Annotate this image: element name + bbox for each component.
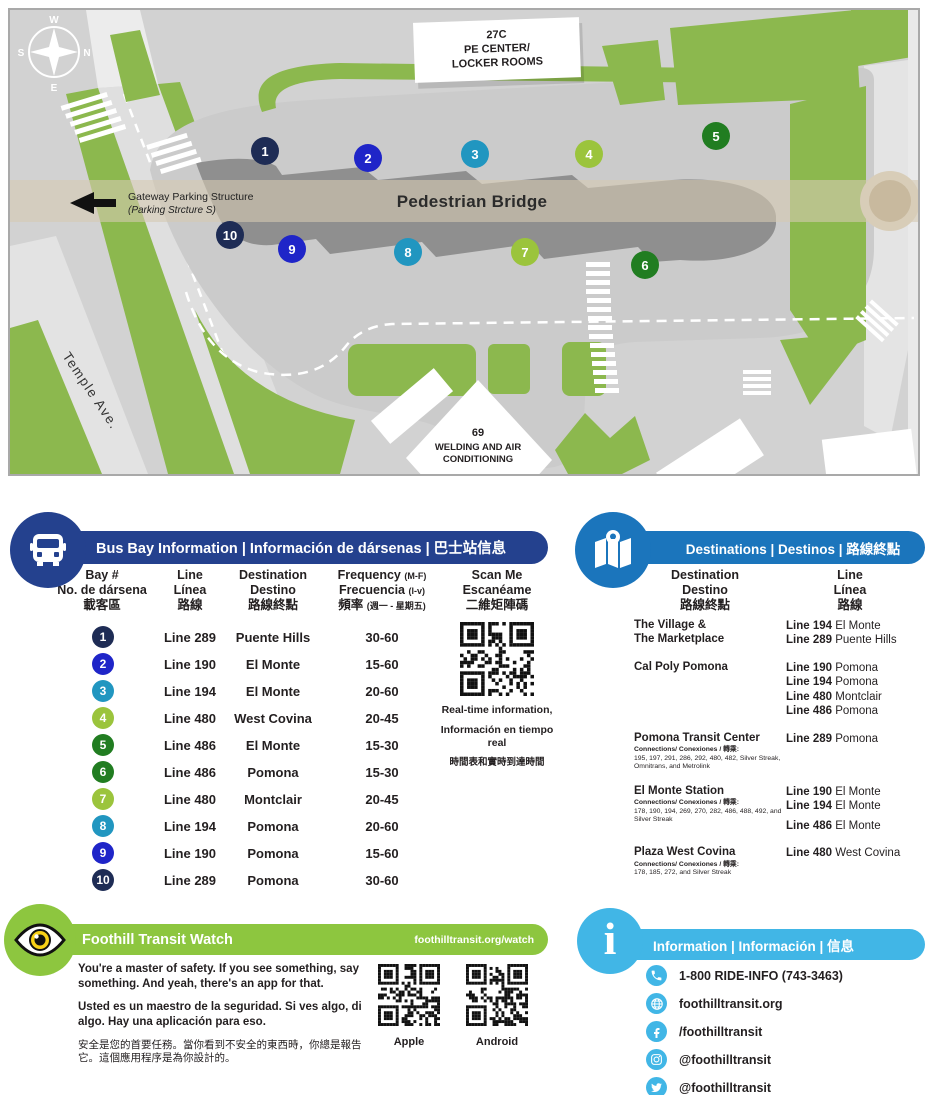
svg-text:8: 8 <box>404 245 411 260</box>
bus-bay-title-text: Bus Bay Information | Información de dár… <box>96 537 506 558</box>
facebook-row: /foothilltransit <box>646 1021 762 1042</box>
bay-marker-1: 1 <box>251 137 279 165</box>
svg-text:PE CENTER/: PE CENTER/ <box>464 42 530 56</box>
instagram-handle[interactable]: @foothilltransit <box>679 1053 771 1067</box>
instagram-row: @foothilltransit <box>646 1049 771 1070</box>
list-item: El Monte Station Connections/ Conexiones… <box>634 785 926 833</box>
eye-icon <box>4 904 76 976</box>
bus-loop-map: 27C PE CENTER/ LOCKER ROOMS 69 WELDING A… <box>8 8 920 476</box>
watch-text-es: Usted es un maestro de la seguridad. Si … <box>78 1000 370 1029</box>
bay-marker-4: 4 <box>575 140 603 168</box>
phone-icon <box>646 965 667 986</box>
destinations-list: The Village & The Marketplace Line 194 E… <box>634 619 926 891</box>
apple-qr-code[interactable] <box>378 964 440 1031</box>
svg-text:1: 1 <box>261 144 268 159</box>
svg-text:3: 3 <box>471 147 478 162</box>
bay-number-badge: 10 <box>92 869 114 891</box>
bay-marker-10: 10 <box>216 221 244 249</box>
table-row: 7 Line 480 Montclair 20-45 <box>0 786 560 813</box>
table-row: 8 Line 194 Pomona 20-60 <box>0 813 560 840</box>
map-icon <box>575 512 651 588</box>
transit-poster: 27C PE CENTER/ LOCKER ROOMS 69 WELDING A… <box>0 0 928 1095</box>
table-row: 10 Line 289 Pomona 30-60 <box>0 867 560 894</box>
svg-text:Gateway Parking Structure: Gateway Parking Structure <box>128 191 254 203</box>
twitter-icon <box>646 1077 667 1095</box>
bay-number-badge: 5 <box>92 734 114 756</box>
phone-row: 1-800 RIDE-INFO (743-3463) <box>646 965 843 986</box>
info-panel-title: Information | Información | 信息 <box>611 929 925 960</box>
column-header-scan: Scan Me Escanéame 二維矩陣碼 <box>442 568 552 612</box>
svg-text:7: 7 <box>521 245 528 260</box>
apple-app-qr: Apple <box>378 964 440 1048</box>
information-icon: i <box>577 908 643 974</box>
svg-text:W: W <box>49 15 59 26</box>
watch-text-zh: 安全是您的首要任務。當你看到不安全的東西時，你總是報告它。這個應用程序是為你設計… <box>78 1039 370 1066</box>
list-item: Plaza West Covina Connections/ Conexione… <box>634 846 926 878</box>
bay-number-badge: 7 <box>92 788 114 810</box>
bay-marker-5: 5 <box>702 122 730 150</box>
bay-number-badge: 8 <box>92 815 114 837</box>
pedestrian-bridge-label: Pedestrian Bridge <box>397 192 548 211</box>
svg-text:S: S <box>18 48 25 59</box>
pe-center-label: 27C <box>486 29 507 42</box>
apple-qr-label: Apple <box>378 1036 440 1048</box>
android-qr-label: Android <box>466 1036 528 1048</box>
website-row: foothilltransit.org <box>646 993 782 1014</box>
watch-text-en: You're a master of safety. If you see so… <box>78 962 370 991</box>
facebook-icon <box>646 1021 667 1042</box>
bay-number-badge: 6 <box>92 761 114 783</box>
svg-text:5: 5 <box>712 129 719 144</box>
watch-url[interactable]: foothilltransit.org/watch <box>414 934 548 946</box>
bay-marker-6: 6 <box>631 251 659 279</box>
android-qr-code[interactable] <box>466 964 528 1031</box>
list-item: The Village & The Marketplace Line 194 E… <box>634 619 926 648</box>
svg-text:E: E <box>51 83 58 94</box>
svg-text:6: 6 <box>641 258 648 273</box>
svg-text:9: 9 <box>288 242 295 257</box>
destinations-title-text: Destinations | Destinos | 路線終點 <box>686 538 901 558</box>
pe-center-building: 27C PE CENTER/ LOCKER ROOMS <box>413 17 584 89</box>
bay-number-badge: 1 <box>92 626 114 648</box>
svg-text:N: N <box>83 48 90 59</box>
bay-number-badge: 2 <box>92 653 114 675</box>
welding-label: 69 <box>472 427 484 439</box>
watch-paragraphs: You're a master of safety. If you see so… <box>78 962 370 1075</box>
column-header-destination: Destination Destino 路線終點 <box>212 568 334 612</box>
destinations-panel-title: Destinations | Destinos | 路線終點 <box>613 531 925 564</box>
bay-number-badge: 9 <box>92 842 114 864</box>
svg-text:CONDITIONING: CONDITIONING <box>443 454 513 465</box>
bus-icon <box>10 512 86 588</box>
bay-marker-2: 2 <box>354 144 382 172</box>
bay-marker-8: 8 <box>394 238 422 266</box>
bridge-tower-core <box>869 180 911 222</box>
website-url[interactable]: foothilltransit.org <box>679 997 782 1011</box>
bay-number-badge: 4 <box>92 707 114 729</box>
svg-text:WELDING AND AIR: WELDING AND AIR <box>435 442 522 453</box>
twitter-row: @foothilltransit <box>646 1077 771 1095</box>
svg-text:2: 2 <box>364 151 371 166</box>
column-header-frequency: Frequency (M-F) Frecuencia (l-v) 頻率 (週一 … <box>322 568 442 612</box>
bay-marker-9: 9 <box>278 235 306 263</box>
realtime-info-qr-code[interactable] <box>460 622 534 701</box>
bay-number-badge: 3 <box>92 680 114 702</box>
info-title-text: Information | Información | 信息 <box>653 935 854 955</box>
watch-panel-title: Foothill Transit Watch foothilltransit.o… <box>42 924 548 955</box>
globe-icon <box>646 993 667 1014</box>
svg-text:10: 10 <box>223 228 237 243</box>
bay-marker-7: 7 <box>511 238 539 266</box>
twitter-handle[interactable]: @foothilltransit <box>679 1081 771 1095</box>
bus-bay-panel-title: Bus Bay Information | Información de dár… <box>52 531 548 564</box>
qr-caption: Real-time information, Información en ti… <box>438 704 556 776</box>
table-row: 9 Line 190 Pomona 15-60 <box>0 840 560 867</box>
phone-number[interactable]: 1-800 RIDE-INFO (743-3463) <box>679 969 843 983</box>
destinations-column-header: Destination Destino 路線終點 <box>630 568 780 612</box>
instagram-icon <box>646 1049 667 1070</box>
bay-marker-3: 3 <box>461 140 489 168</box>
line-column-header: Line Línea 路線 <box>790 568 910 612</box>
facebook-handle[interactable]: /foothilltransit <box>679 1025 762 1039</box>
watch-title-text: Foothill Transit Watch <box>82 932 233 948</box>
list-item: Pomona Transit Center Connections/ Conex… <box>634 732 926 772</box>
svg-text:4: 4 <box>585 147 593 162</box>
list-item: Cal Poly Pomona Line 190 Pomona Line 194… <box>634 661 926 719</box>
android-app-qr: Android <box>466 964 528 1048</box>
svg-text:(Parking Strcture S): (Parking Strcture S) <box>128 205 216 216</box>
